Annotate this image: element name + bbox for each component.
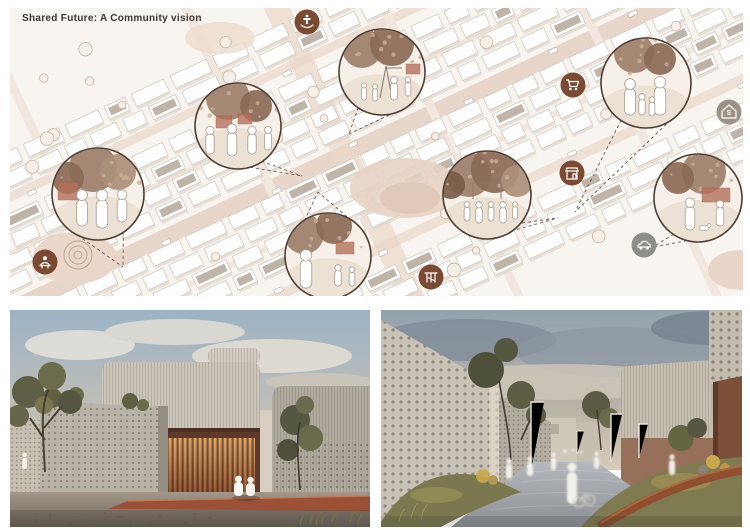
pedestrian-street-render (381, 310, 742, 527)
community-icon (33, 250, 58, 275)
courtyard-building-render (10, 310, 370, 527)
cart-icon (561, 73, 586, 98)
car-share-icon (632, 233, 657, 258)
storefront-icon (560, 161, 585, 186)
svg-text:S: S (727, 110, 732, 117)
board-title: Shared Future: A Community vision (22, 13, 202, 24)
side-wall (260, 410, 274, 502)
foreground-shadow (10, 510, 370, 527)
foreground-shadow (381, 516, 742, 527)
eco-home-icon: S (717, 100, 742, 125)
distant-person (22, 453, 27, 469)
pergola-icon (419, 265, 444, 290)
community-vision-map: Shared Future: A Community vision S (10, 8, 743, 296)
fountain-icon (295, 10, 320, 35)
isometric-site-plan: S (10, 8, 743, 296)
